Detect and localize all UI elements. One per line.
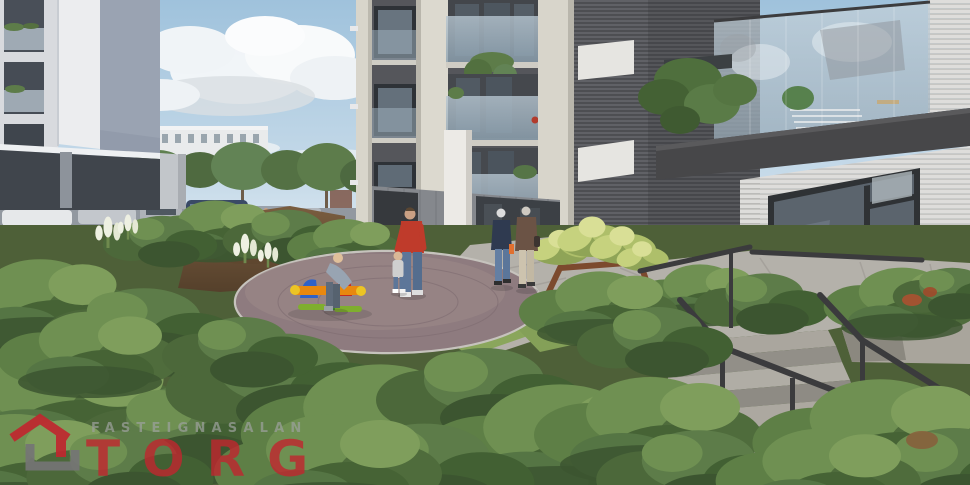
red-plant-on-balcony bbox=[532, 117, 539, 124]
scene-svg: FASTEIGNASALAN TORG bbox=[0, 0, 970, 485]
left-building-balcony bbox=[4, 62, 44, 114]
white-spandrel-panel bbox=[578, 40, 634, 80]
left-apartment-building bbox=[0, 0, 186, 210]
logo-text-torg: TORG bbox=[86, 430, 330, 485]
rust-colored-plant bbox=[906, 431, 938, 449]
orange-bag bbox=[509, 244, 514, 254]
rendering-canvas: FASTEIGNASALAN TORG bbox=[0, 0, 970, 485]
under-building-shadow bbox=[0, 150, 160, 210]
left-building-balcony bbox=[4, 0, 44, 52]
handbag bbox=[534, 236, 540, 247]
